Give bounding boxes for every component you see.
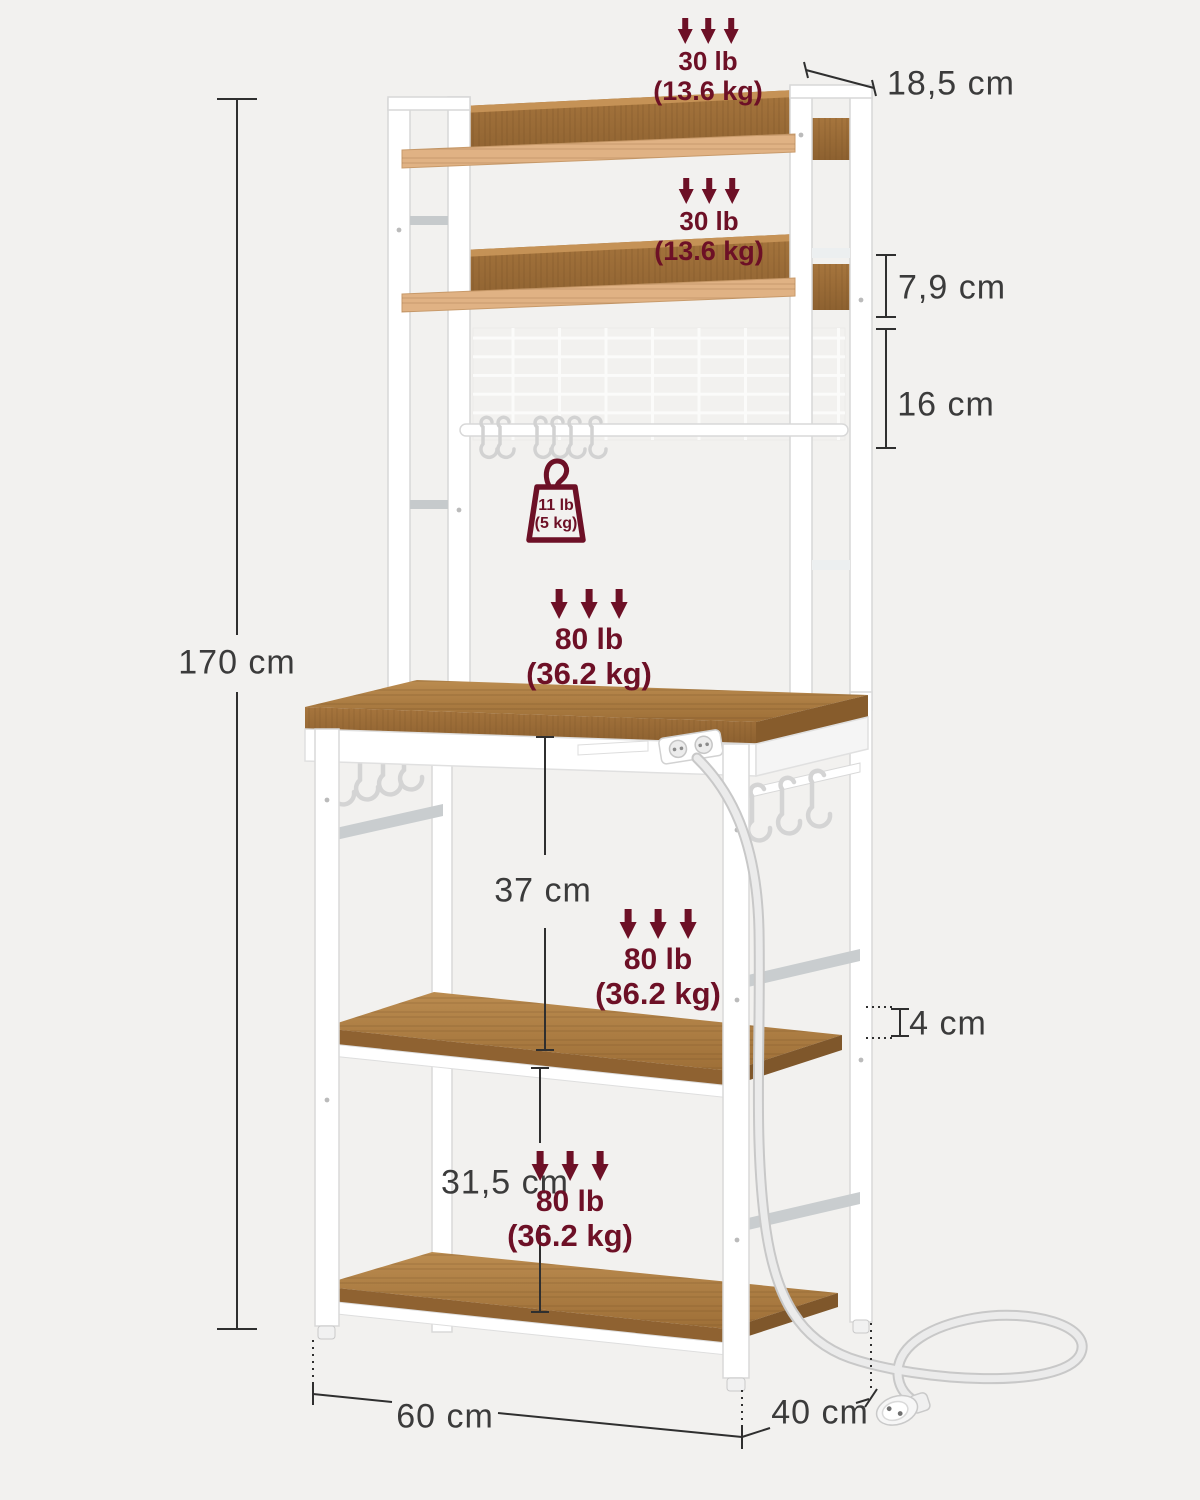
dim-width-label: 60 cm xyxy=(396,1398,494,1437)
capacity-lb: 80 lb xyxy=(624,943,692,977)
back-right-foot xyxy=(853,1320,869,1333)
bottom-shelf xyxy=(318,1252,838,1355)
hutch-left-frame xyxy=(388,97,470,695)
dim-shelf-thickness-label: 4 cm xyxy=(909,1005,987,1044)
hook-capacity-lb: 11 lb xyxy=(538,497,574,515)
dim-shelf-spacing-label: 7,9 cm xyxy=(898,269,1006,308)
down-arrows-icon xyxy=(677,178,741,205)
capacity-lb: 80 lb xyxy=(536,1185,604,1219)
capacity-lb: 30 lb xyxy=(678,47,737,76)
dim-depth-label: 40 cm xyxy=(771,1394,869,1433)
capacity-lb: 80 lb xyxy=(555,623,623,657)
capacity-label-second-shelf: 30 lb (13.6 kg) xyxy=(654,178,764,266)
down-arrows-icon xyxy=(619,909,697,941)
bakers-rack-illustration xyxy=(0,0,1200,1500)
back-right-leg xyxy=(850,692,872,1322)
base-unit xyxy=(305,133,1082,1431)
capacity-kg: (13.6 kg) xyxy=(653,76,763,106)
down-arrows-icon xyxy=(531,1151,609,1183)
capacity-label-middle-shelf: 80 lb (36.2 kg) xyxy=(595,909,721,1011)
counter-top xyxy=(305,680,868,776)
dim-width-line xyxy=(313,1340,742,1449)
dim-total-height-line xyxy=(217,99,257,1329)
capacity-label-top-shelf: 30 lb (13.6 kg) xyxy=(653,18,763,106)
down-arrows-icon xyxy=(550,589,628,621)
dim-shelf-spacing-line xyxy=(876,255,896,317)
dim-grid-height-label: 16 cm xyxy=(897,386,995,425)
product-dimension-diagram: 170 cm 18,5 cm 7,9 cm 16 cm 37 cm 4 cm 3… xyxy=(0,0,1200,1500)
dim-total-height-label: 170 cm xyxy=(178,644,296,683)
capacity-kg: (13.6 kg) xyxy=(654,236,764,266)
dim-hutch-depth-label: 18,5 cm xyxy=(887,65,1015,104)
capacity-kg: (36.2 kg) xyxy=(595,977,721,1012)
capacity-label-bottom-shelf: 80 lb (36.2 kg) xyxy=(507,1151,633,1253)
capacity-kg: (36.2 kg) xyxy=(526,657,652,692)
hanging-rail xyxy=(460,424,848,436)
down-arrows-icon xyxy=(676,18,740,45)
capacity-lb: 30 lb xyxy=(679,207,738,236)
hook-capacity-kg: (5 kg) xyxy=(535,515,578,533)
front-left-leg xyxy=(315,729,339,1339)
wire-grid-panel xyxy=(473,328,845,440)
capacity-kg: (36.2 kg) xyxy=(507,1219,633,1254)
dim-counter-clearance-label: 37 cm xyxy=(494,872,592,911)
dim-grid-height-line xyxy=(876,329,896,448)
capacity-label-counter: 80 lb (36.2 kg) xyxy=(526,589,652,691)
